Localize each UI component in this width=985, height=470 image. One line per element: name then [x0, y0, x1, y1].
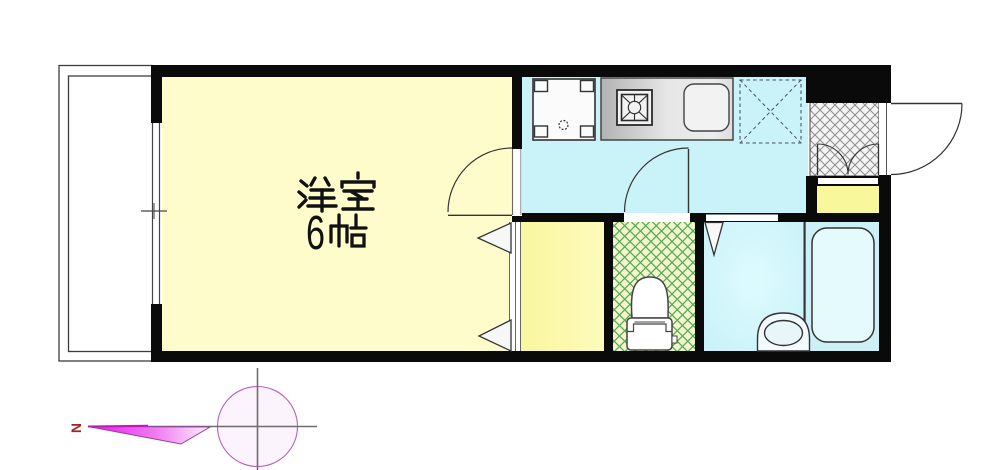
- svg-text:N: N: [68, 423, 84, 433]
- svg-text:6: 6: [306, 207, 325, 260]
